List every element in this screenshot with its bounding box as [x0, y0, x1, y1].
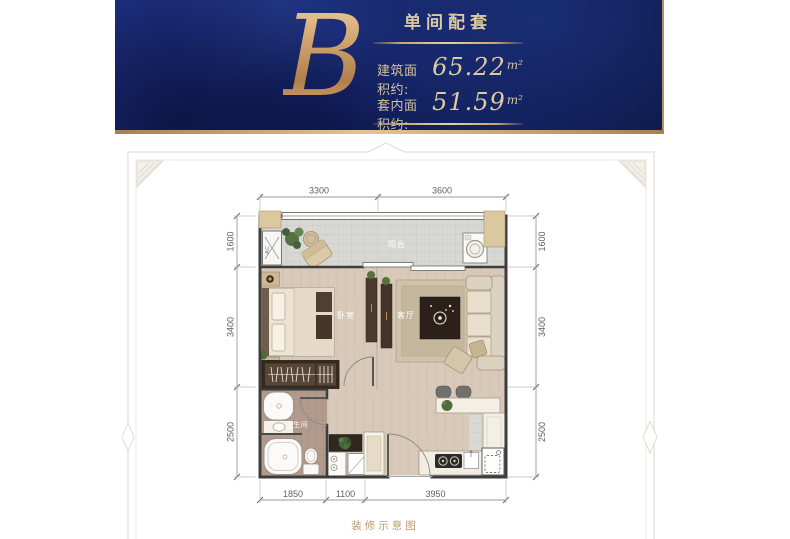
frame-corner-ornament-right	[619, 161, 645, 187]
plant-icon	[367, 271, 375, 279]
dim-left-3: 2500	[226, 422, 236, 442]
nightstand-top	[261, 272, 280, 286]
sofa	[466, 276, 505, 370]
water-heater-unit	[482, 448, 504, 475]
frame-side-ornament-right	[643, 421, 657, 453]
dim-right-3: 2500	[537, 422, 547, 442]
room-label-bedroom: 卧室	[337, 310, 355, 320]
bathtub	[264, 439, 302, 475]
room-label-bathroom: 卫生间	[286, 420, 309, 429]
shower	[264, 392, 294, 420]
dim-bottom-1: 1850	[283, 489, 303, 499]
window	[282, 213, 484, 220]
dim-bottom-2: 1100	[336, 489, 355, 499]
dim-top-1: 3300	[309, 186, 329, 196]
kitchen-counter	[419, 450, 482, 475]
room-label-balcony: 阳台	[388, 239, 406, 249]
laundry-cabinet	[348, 454, 365, 475]
cooktop	[435, 454, 462, 468]
floorplan-poster: AC	[0, 0, 790, 539]
wardrobe	[262, 361, 339, 389]
frame-corner-ornament-left	[137, 161, 163, 187]
dim-top-2: 3600	[432, 186, 452, 196]
plant-icon	[382, 277, 390, 285]
dim-left-1: 1600	[226, 231, 236, 251]
ac-label: AC	[265, 245, 271, 254]
dim-bottom-3: 3950	[425, 489, 445, 499]
caption: 装修示意图	[351, 519, 419, 532]
ac-unit: AC	[263, 231, 282, 265]
laundry-machine	[328, 452, 346, 476]
kitchen-sink	[464, 450, 479, 468]
entry-cabinet	[364, 432, 384, 475]
dim-right-2: 3400	[537, 317, 547, 337]
coffee-table	[420, 297, 460, 339]
floor-plan-canvas: AC	[0, 0, 790, 539]
dim-right-1: 1600	[537, 231, 547, 251]
room-label-living-room: 客厅	[397, 310, 415, 320]
frame-side-ornament-left	[122, 423, 134, 451]
washing-machine	[463, 233, 487, 263]
bed	[262, 288, 334, 356]
dim-left-2: 3400	[226, 317, 236, 337]
laundry-counter	[329, 435, 362, 452]
